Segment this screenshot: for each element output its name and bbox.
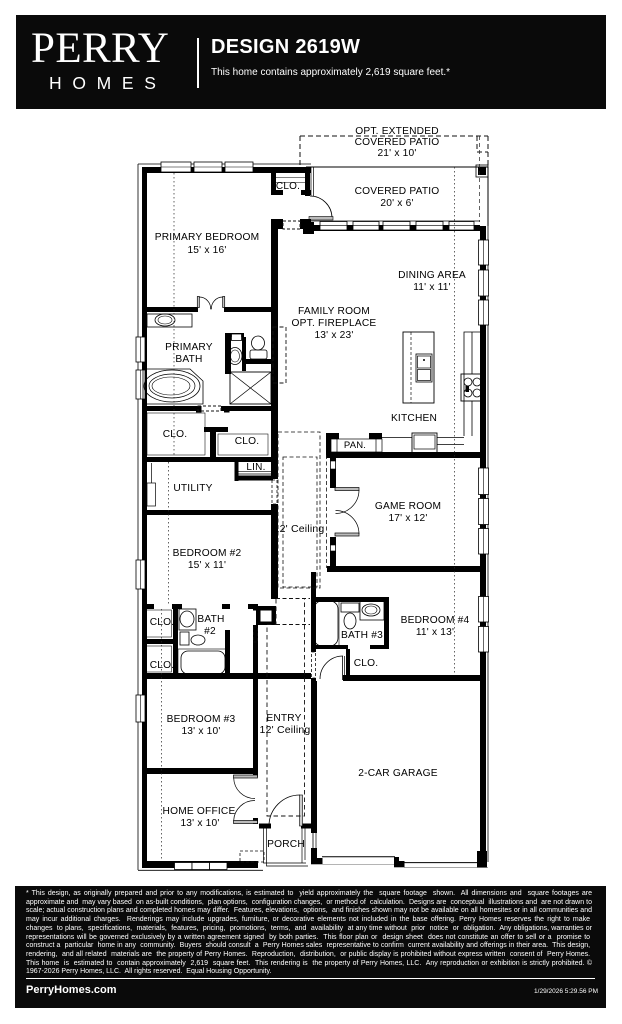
svg-text:BATH: BATH — [197, 614, 224, 625]
svg-text:BEDROOM #2: BEDROOM #2 — [173, 548, 242, 559]
svg-text:17' x 12': 17' x 12' — [388, 513, 427, 524]
svg-text:13' x 23': 13' x 23' — [314, 330, 353, 341]
svg-text:OPT. FIREPLACE: OPT. FIREPLACE — [292, 318, 377, 329]
svg-text:HOME OFFICE: HOME OFFICE — [163, 806, 236, 817]
svg-text:#2: #2 — [204, 626, 216, 637]
svg-text:15' x 11': 15' x 11' — [188, 560, 226, 571]
svg-text:11' x 11': 11' x 11' — [413, 282, 451, 293]
svg-text:OPT. EXTENDED: OPT. EXTENDED — [355, 126, 439, 137]
svg-text:13' x 10': 13' x 10' — [181, 726, 220, 737]
svg-text:21' x 10': 21' x 10' — [377, 148, 416, 159]
svg-text:CLO.: CLO. — [354, 658, 379, 669]
svg-text:ENTRY: ENTRY — [266, 713, 301, 724]
svg-text:CLO.: CLO. — [150, 617, 175, 628]
svg-text:PRIMARY BEDROOM: PRIMARY BEDROOM — [155, 232, 260, 243]
svg-text:BEDROOM #4: BEDROOM #4 — [401, 615, 470, 626]
svg-text:FAMILY ROOM: FAMILY ROOM — [298, 306, 370, 317]
svg-text:15' x 16': 15' x 16' — [187, 245, 226, 256]
svg-text:BEDROOM #3: BEDROOM #3 — [167, 714, 236, 725]
svg-text:LIN.: LIN. — [246, 462, 265, 473]
svg-text:12' Ceiling: 12' Ceiling — [274, 523, 325, 535]
svg-text:13' x 10': 13' x 10' — [180, 818, 219, 829]
svg-text:CLO.: CLO. — [276, 181, 300, 192]
svg-text:PORCH: PORCH — [267, 839, 305, 850]
svg-text:PRIMARY: PRIMARY — [165, 342, 213, 353]
svg-text:COVERED PATIO: COVERED PATIO — [355, 137, 440, 148]
svg-text:2-CAR GARAGE: 2-CAR GARAGE — [358, 768, 437, 779]
svg-text:11' x 13': 11' x 13' — [416, 627, 454, 638]
svg-text:KITCHEN: KITCHEN — [391, 413, 437, 424]
svg-text:12' Ceiling: 12' Ceiling — [260, 724, 311, 736]
svg-text:BATH: BATH — [175, 354, 202, 365]
svg-text:CLO.: CLO. — [150, 660, 175, 671]
svg-text:PAN.: PAN. — [344, 440, 366, 451]
svg-text:20' x 6': 20' x 6' — [380, 198, 413, 209]
svg-text:DINING AREA: DINING AREA — [398, 270, 466, 281]
svg-text:GAME ROOM: GAME ROOM — [375, 501, 441, 512]
svg-text:CLO.: CLO. — [235, 436, 260, 447]
svg-text:COVERED PATIO: COVERED PATIO — [355, 186, 440, 197]
svg-text:CLO.: CLO. — [163, 429, 188, 440]
svg-text:UTILITY: UTILITY — [173, 483, 212, 494]
svg-text:BATH #3: BATH #3 — [341, 630, 383, 641]
